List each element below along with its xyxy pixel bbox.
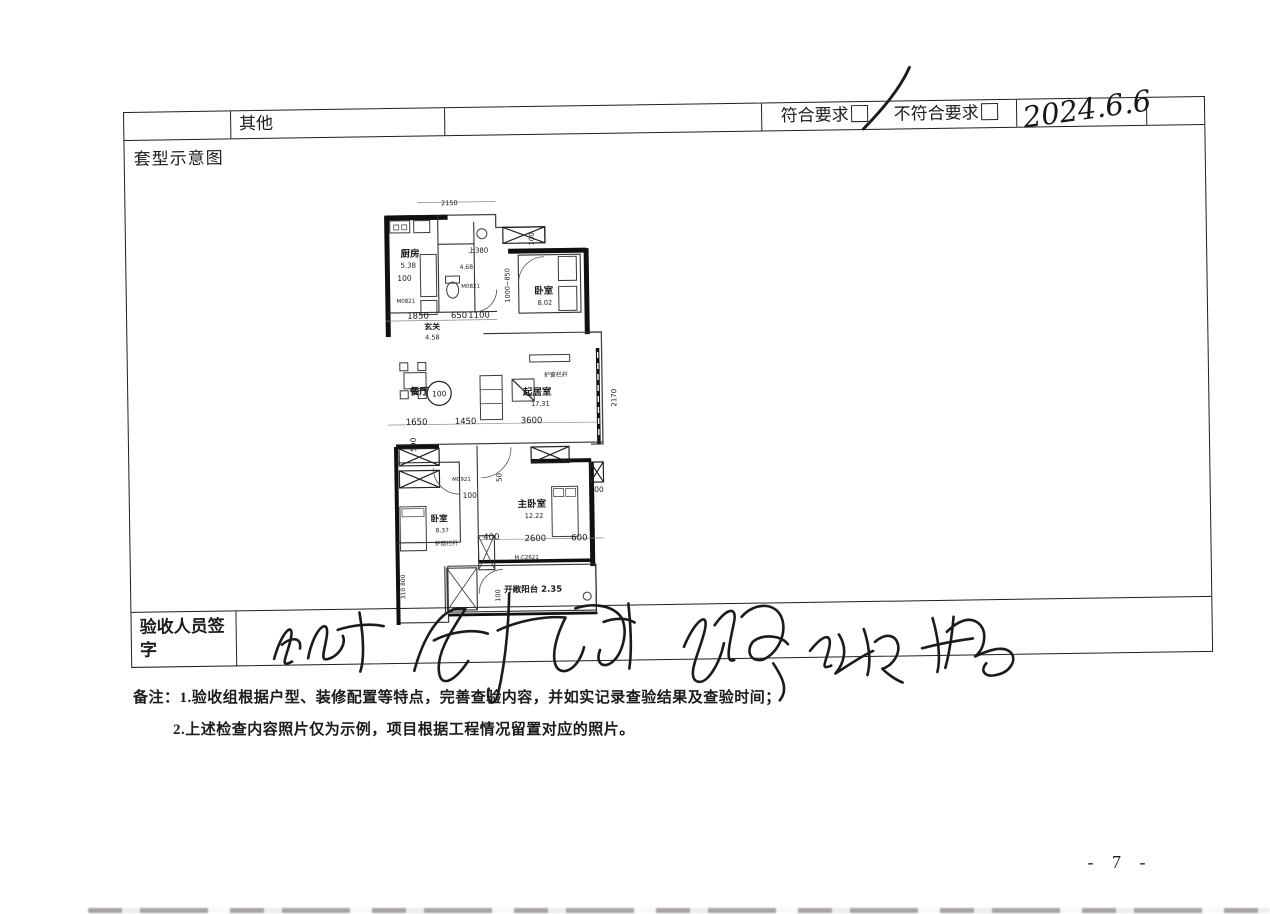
room-area: 8.37 — [436, 527, 450, 534]
room-label: 餐厅 — [409, 385, 430, 397]
drain-icon — [583, 592, 591, 600]
dim: 3600 — [521, 416, 543, 426]
dim: 1850 — [407, 311, 429, 321]
dim: 100 — [494, 589, 502, 602]
room-label: 主卧室 — [518, 498, 547, 510]
tv-cabinet-icon — [530, 354, 570, 362]
dim: 700 — [589, 485, 604, 494]
inspection-table: 其他 符合要求不符合要求 套型示意图 — [123, 96, 1213, 668]
dim: 2170 — [610, 389, 618, 407]
room-label: 起居室 — [522, 386, 552, 398]
dim: 590 — [409, 437, 418, 452]
signature-label-line2: 字 — [140, 641, 157, 660]
scanned-inspection-form: 其他 符合要求不符合要求 套型示意图 — [0, 0, 1270, 914]
dim: 650 — [451, 311, 467, 321]
remarks: 备注：1.验收组根据户型、装修配置等特点，完善查验内容，并如实记录查验结果及查验… — [133, 690, 1093, 739]
dim: 上380 — [468, 246, 489, 255]
room-label: 玄关 — [424, 321, 440, 331]
furniture — [390, 218, 592, 603]
bed-icon — [400, 507, 427, 551]
room-label: 厨房 — [401, 248, 420, 260]
dim: 1000~850 — [503, 268, 512, 303]
dim: 1100 — [468, 311, 490, 321]
counter-icon — [420, 254, 437, 296]
dim: 1650 — [406, 418, 428, 428]
sofa-icon — [480, 375, 503, 419]
room-area: 12.22 — [525, 512, 544, 520]
dim: 600 — [571, 533, 587, 543]
shafts — [396, 226, 604, 488]
remark-line-1: 备注：1.验收组根据户型、装修配置等特点，完善查验内容，并如实记录查验结果及查验… — [133, 690, 1093, 707]
toilet-icon — [447, 282, 459, 298]
level-mark: 100 — [432, 389, 447, 398]
dim: 50 — [495, 473, 503, 482]
noncompliant-checkbox[interactable] — [981, 103, 998, 120]
door-code: M0821 — [396, 299, 415, 305]
floorplan-drawing: 厨房 5.38 100 M0821 上380 4.68 M0821 2150 1… — [377, 191, 667, 633]
signature-label-cell: 验收人员签 字 — [131, 611, 237, 668]
bed-icon — [552, 486, 579, 536]
dim: 100 — [528, 232, 536, 245]
compliant-checkbox[interactable] — [851, 105, 868, 122]
basin-icon — [477, 229, 487, 239]
room-area: 17.31 — [531, 400, 550, 408]
conformity-cell: 符合要求不符合要求 — [762, 100, 1018, 131]
dim: 2600 — [524, 534, 546, 544]
item-other-cell: 其他 — [231, 108, 446, 138]
page-number: - 7 - — [1040, 852, 1200, 873]
guard-label: 护窗栏杆 — [435, 539, 459, 547]
stove-icon — [414, 220, 430, 232]
room-area: 8.02 — [538, 299, 553, 307]
dim: 100 — [462, 491, 477, 500]
room-area: 5.38 — [400, 262, 416, 270]
category-cell-empty — [124, 111, 231, 140]
date-cell — [1017, 98, 1147, 127]
floorplan-section-title: 套型示意图 — [133, 144, 223, 170]
other-label: 其他 — [239, 114, 273, 134]
partitions — [387, 213, 606, 613]
scan-edge-artifact — [88, 908, 1270, 913]
dim: 310 800 — [400, 574, 407, 599]
floorplan-row: 套型示意图 — [124, 125, 1211, 613]
end-cell-empty — [1147, 97, 1204, 125]
room-label: 卧室 — [430, 513, 448, 524]
dim: 100 — [397, 274, 412, 283]
result-detail-cell-empty — [445, 104, 762, 136]
guard-label: 护窗栏杆 — [544, 370, 568, 378]
room-label: 卧室 — [534, 285, 554, 297]
bed-icon — [558, 256, 576, 280]
door-code: M0821 — [461, 284, 480, 290]
room-area: 4.68 — [460, 264, 474, 271]
compliant-label: 符合要求 — [781, 105, 849, 125]
door-code: M0921 — [452, 477, 471, 483]
bed-icon — [559, 286, 577, 310]
room-label: 开敞阳台 2.35 — [504, 584, 562, 596]
window-code: M.C2621 — [514, 555, 538, 561]
room-area: 4.58 — [425, 333, 440, 341]
dim: 2150 — [441, 199, 458, 207]
dim: 400 — [483, 532, 499, 542]
remark-line-2: 2.上述检查内容照片仅为示例，项目根据工程情况留置对应的照片。 — [133, 722, 1093, 739]
dim: 1450 — [455, 417, 477, 427]
signature-label-line1: 验收人员签 — [140, 617, 225, 637]
noncompliant-label: 不符合要求 — [894, 103, 979, 123]
